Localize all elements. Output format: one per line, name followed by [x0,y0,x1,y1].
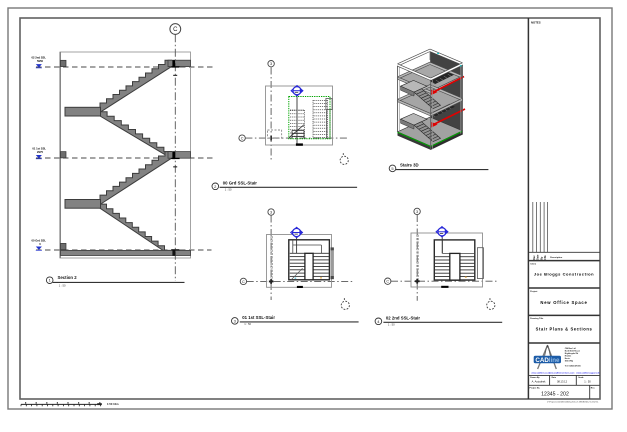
svg-text:3: 3 [270,62,272,66]
svg-text:1 : 50: 1 : 50 [244,322,251,326]
svg-text:SG5 1RQ: SG5 1RQ [565,361,574,363]
svg-text:A. Autodesk: A. Autodesk [532,379,547,383]
svg-text:12345 - 202: 12345 - 202 [541,392,569,398]
svg-text:CADline Ltd: CADline Ltd [565,347,577,350]
svg-text:C: C [241,137,244,141]
svg-text:Joe Bloggs Construction: Joe Bloggs Construction [534,272,594,277]
svg-text:1 : 50: 1 : 50 [59,284,66,288]
svg-text:5950: 5950 [37,59,43,63]
svg-text:Description: Description [550,256,563,259]
svg-text:Herts.: Herts. [565,357,571,360]
svg-text:NOTES: NOTES [531,21,541,25]
svg-text:Date: Date [537,254,540,260]
svg-text:1 : 50: 1 : 50 [225,188,232,192]
svg-text:08.13.12: 08.13.12 [557,379,568,383]
svg-text:Hitchin: Hitchin [565,354,572,357]
svg-text:02 2nd SSL-Stair: 02 2nd SSL-Stair [386,315,420,320]
svg-text:C: C [386,280,389,284]
svg-text:Stair Plans & Sections: Stair Plans & Sections [536,326,593,331]
svg-text:3: 3 [270,210,272,214]
svg-text:Rev.: Rev. [591,387,596,389]
svg-text:Tel: 01462 476100: Tel: 01462 476100 [565,365,581,368]
svg-text:Stairs 3D: Stairs 3D [400,162,419,167]
svg-text:New Office Space: New Office Space [540,300,587,305]
svg-text:Project: Project [530,290,537,293]
svg-text:C: C [242,280,245,284]
svg-text:Rev: Rev [533,255,536,260]
svg-text:1:50 10m: 1:50 10m [107,402,119,406]
svg-text:CADline: CADline [535,357,560,364]
svg-text:Northfield House: Northfield House [565,349,580,352]
svg-text:2975: 2975 [37,150,43,154]
svg-text:Scale: Scale [578,377,584,379]
svg-text:C: C [173,27,178,33]
svg-text:Chk: Chk [544,255,547,260]
svg-text:Project No.: Project No. [530,386,541,389]
svg-text:Nightingale Rd: Nightingale Rd [565,352,579,355]
svg-text:Drawn By: Drawn By [530,377,540,379]
svg-text:www.cadline.co.ukwww.cadlinese: www.cadline.co.ukwww.cadlineservices.com… [531,371,600,374]
svg-text:3: 3 [416,210,418,214]
svg-text:01 1st SSL-Stair: 01 1st SSL-Stair [242,315,275,320]
svg-text:Section 2: Section 2 [58,275,78,280]
svg-text:1 : 50: 1 : 50 [388,323,395,327]
svg-text:Drawing Title: Drawing Title [530,317,544,320]
svg-text:Client: Client [530,263,536,266]
svg-text:00 Grd SSL-Stair: 00 Grd SSL-Stair [223,180,257,185]
svg-text:1 : 50: 1 : 50 [584,379,591,383]
svg-text:J:\Projects\12345\12345-202.rv: J:\Projects\12345\12345-202.rvt 28/08/20… [547,401,599,404]
